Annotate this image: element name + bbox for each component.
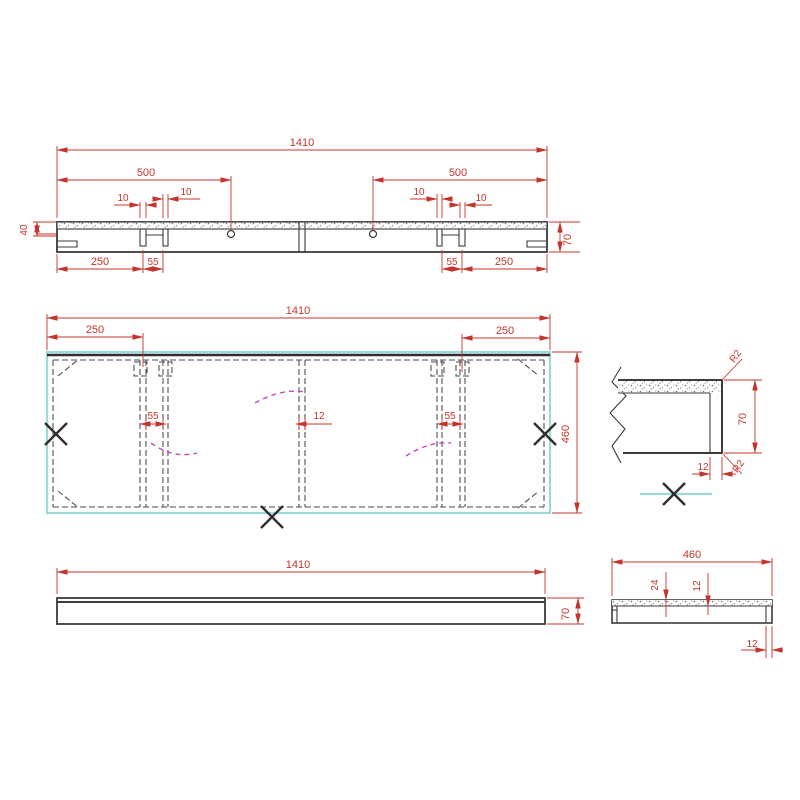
- end-view: 460 24 12 12: [612, 549, 783, 658]
- slot-c: [437, 229, 442, 246]
- corner-bend-line: [58, 491, 79, 508]
- dim-right-250: 250: [495, 256, 513, 268]
- dim-height-70: 70: [562, 234, 574, 246]
- dim-plan-overall: 1410: [286, 305, 310, 317]
- corner-bend-line: [518, 359, 539, 376]
- bend-arc: [151, 443, 197, 455]
- dim-radius-bottom: R2: [731, 458, 748, 475]
- front-view: 1410 70: [57, 559, 584, 624]
- cad-drawing: 1410 500 500 10 10 10 10: [0, 0, 800, 800]
- dim-right-500: 500: [449, 167, 467, 179]
- hole-right: [370, 231, 377, 238]
- dim-slot-b: 10: [180, 187, 192, 198]
- x-marker-left: [45, 423, 67, 445]
- slot-tab: [159, 362, 172, 376]
- x-marker-bottom: [261, 506, 283, 528]
- dim-front-height: 70: [560, 608, 572, 620]
- dim-radius-top: R2: [728, 348, 745, 365]
- dim-detail-height: 70: [737, 413, 749, 425]
- dim-left-250: 250: [91, 256, 109, 268]
- dim-end-wall-12: 12: [746, 639, 758, 650]
- corner-bend-line: [58, 359, 79, 376]
- dim-plan-depth-460: 460: [560, 425, 572, 443]
- dim-plan-center-12: 12: [313, 411, 325, 422]
- dim-left-55: 55: [147, 257, 159, 268]
- slot-a: [140, 229, 146, 246]
- dim-slot-c: 10: [413, 187, 425, 198]
- dim-height-40: 40: [19, 224, 30, 236]
- dim-slot-d: 10: [475, 193, 487, 204]
- dim-front-length: 1410: [286, 559, 310, 571]
- detail-hatch-strip: [618, 380, 722, 393]
- corner-detail-view: 70 R2 R2 12: [610, 348, 762, 505]
- corner-bend-line: [518, 491, 539, 508]
- hole-left: [228, 231, 235, 238]
- dim-top-overall: 1410: [290, 137, 314, 149]
- plan-view: 1410 250 250 55 12 55 460: [45, 305, 582, 528]
- bend-arc: [255, 391, 305, 403]
- dim-plan-left-55: 55: [147, 411, 159, 422]
- slot-tab: [456, 362, 469, 376]
- dim-end-width: 460: [683, 549, 701, 561]
- dim-plan-left-250: 250: [86, 324, 104, 336]
- slot-d: [459, 229, 465, 246]
- drawing-canvas: 1410 500 500 10 10 10 10: [0, 0, 800, 800]
- section-top-hatch-strip: [57, 222, 547, 229]
- dim-end-24: 24: [650, 579, 661, 591]
- dim-plan-right-55: 55: [444, 411, 456, 422]
- dim-end-12: 12: [692, 580, 703, 592]
- dim-detail-thickness: 12: [697, 462, 709, 473]
- dim-left-500: 500: [137, 167, 155, 179]
- slot-b: [163, 229, 168, 246]
- top-section-view: 1410 500 500 10 10 10 10: [19, 137, 580, 273]
- dim-right-55: 55: [446, 257, 458, 268]
- bend-arc: [406, 443, 451, 456]
- dim-slot-a: 10: [117, 193, 129, 204]
- x-marker-right: [534, 423, 556, 445]
- dim-plan-right-250: 250: [496, 325, 514, 337]
- end-hatch-strip: [612, 600, 772, 606]
